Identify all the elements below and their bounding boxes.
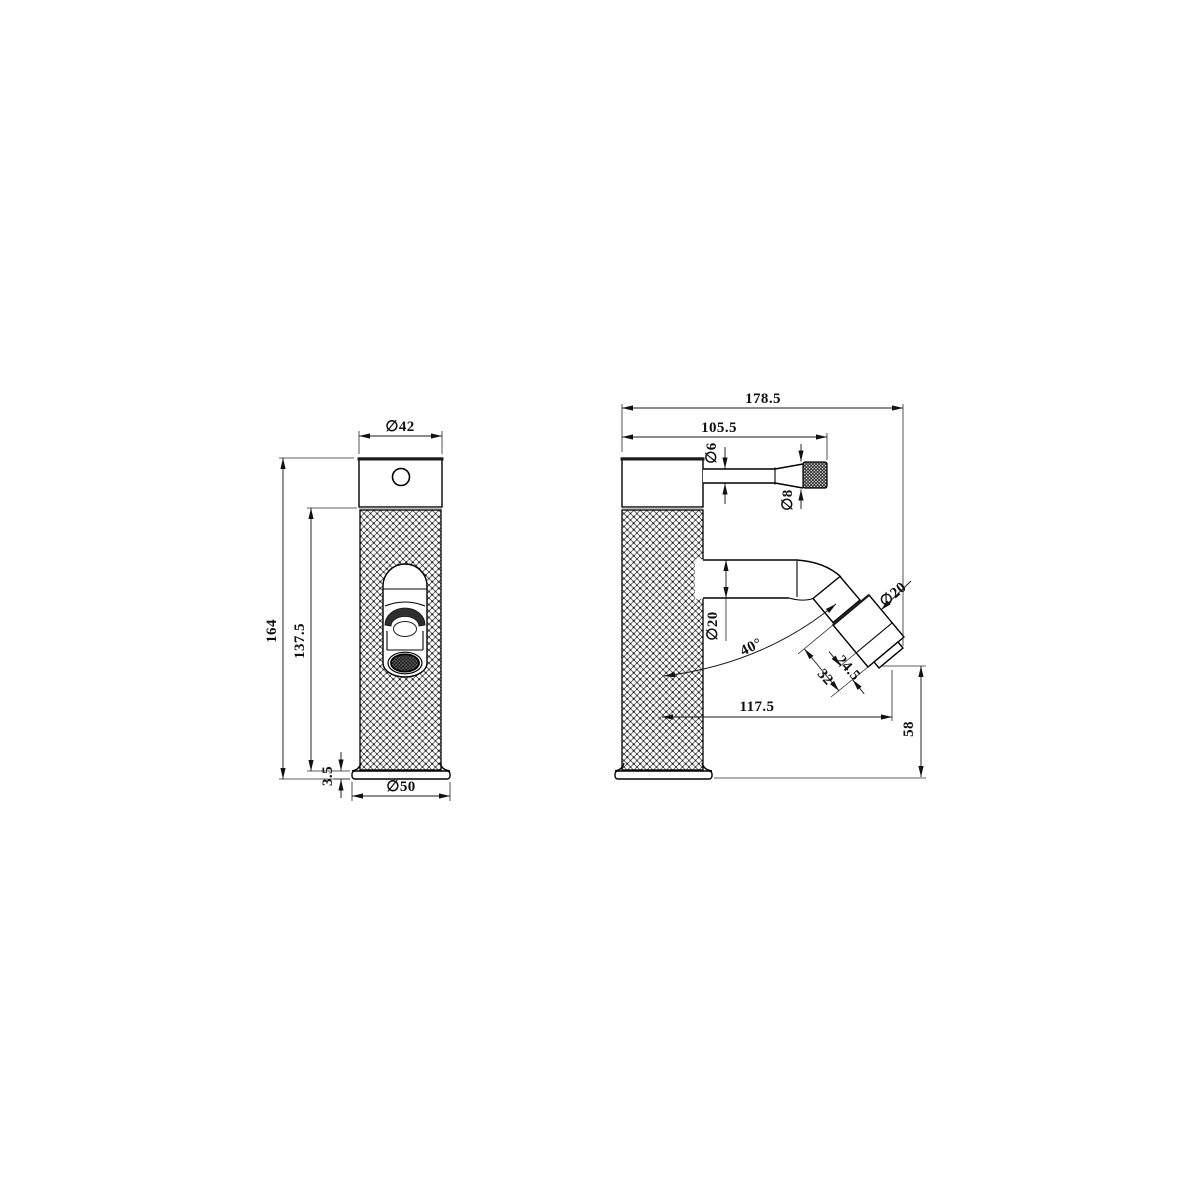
dim-outlet-length-outer: 32	[798, 625, 839, 691]
technical-drawing-page: ∅42 164 137.5 3.5	[0, 0, 1200, 1200]
dim-label-handle-rod-diameter: ∅6	[704, 442, 720, 463]
dim-top-diameter: ∅42	[359, 419, 442, 454]
side-view: 178.5 105.5 ∅6 ∅8	[615, 391, 926, 779]
front-aerator-face	[391, 654, 419, 671]
dim-label-spout-diameter: ∅20	[705, 611, 721, 640]
dim-handle-length: 105.5	[622, 420, 827, 460]
dim-label-overall-height: 164	[264, 619, 280, 643]
dim-label-handle-knob-diameter: ∅8	[780, 489, 796, 510]
dim-overall-height: 164	[264, 458, 354, 779]
dim-label-base-thickness: 3.5	[320, 766, 336, 786]
front-button-icon	[393, 469, 410, 486]
dim-label-outlet-diameter: ∅20	[877, 579, 910, 610]
dim-label-top-diameter: ∅42	[385, 419, 414, 435]
dim-label-outlet-length-outer: 32	[814, 666, 836, 688]
side-cap	[622, 458, 703, 507]
dim-base-thickness: 3.5	[320, 752, 350, 798]
lever-knurled-knob	[803, 462, 827, 488]
dim-label-outlet-length-inner: 24.5	[833, 653, 864, 684]
dim-label-base-diameter: ∅50	[386, 779, 415, 795]
dim-body-height: 137.5	[292, 508, 357, 771]
side-knurled-body	[622, 510, 703, 770]
dim-outlet-diameter: ∅20	[877, 579, 911, 610]
side-faucet-body	[615, 458, 904, 779]
dim-label-handle-length: 105.5	[701, 420, 737, 436]
dim-handle-knob-diameter: ∅8	[780, 444, 801, 511]
spout-pipe-fill	[695, 559, 798, 598]
lever-rod-fill	[703, 469, 775, 483]
dim-label-overall-length: 178.5	[745, 391, 781, 407]
front-elbow-core	[394, 622, 417, 637]
elbow-outer-curve	[797, 560, 841, 577]
dim-label-spout-angle: 40°	[738, 635, 765, 659]
dim-label-body-height: 137.5	[292, 623, 308, 659]
front-faucet-body	[352, 458, 450, 779]
faucet-technical-drawing: ∅42 164 137.5 3.5	[0, 0, 1200, 1200]
front-view: ∅42 164 137.5 3.5	[264, 419, 450, 801]
front-base-plate	[352, 771, 450, 779]
dim-label-outlet-height: 58	[901, 721, 917, 737]
dim-label-spout-reach: 117.5	[740, 699, 775, 715]
side-base-plate	[615, 771, 712, 779]
dim-base-diameter: ∅50	[352, 779, 450, 801]
